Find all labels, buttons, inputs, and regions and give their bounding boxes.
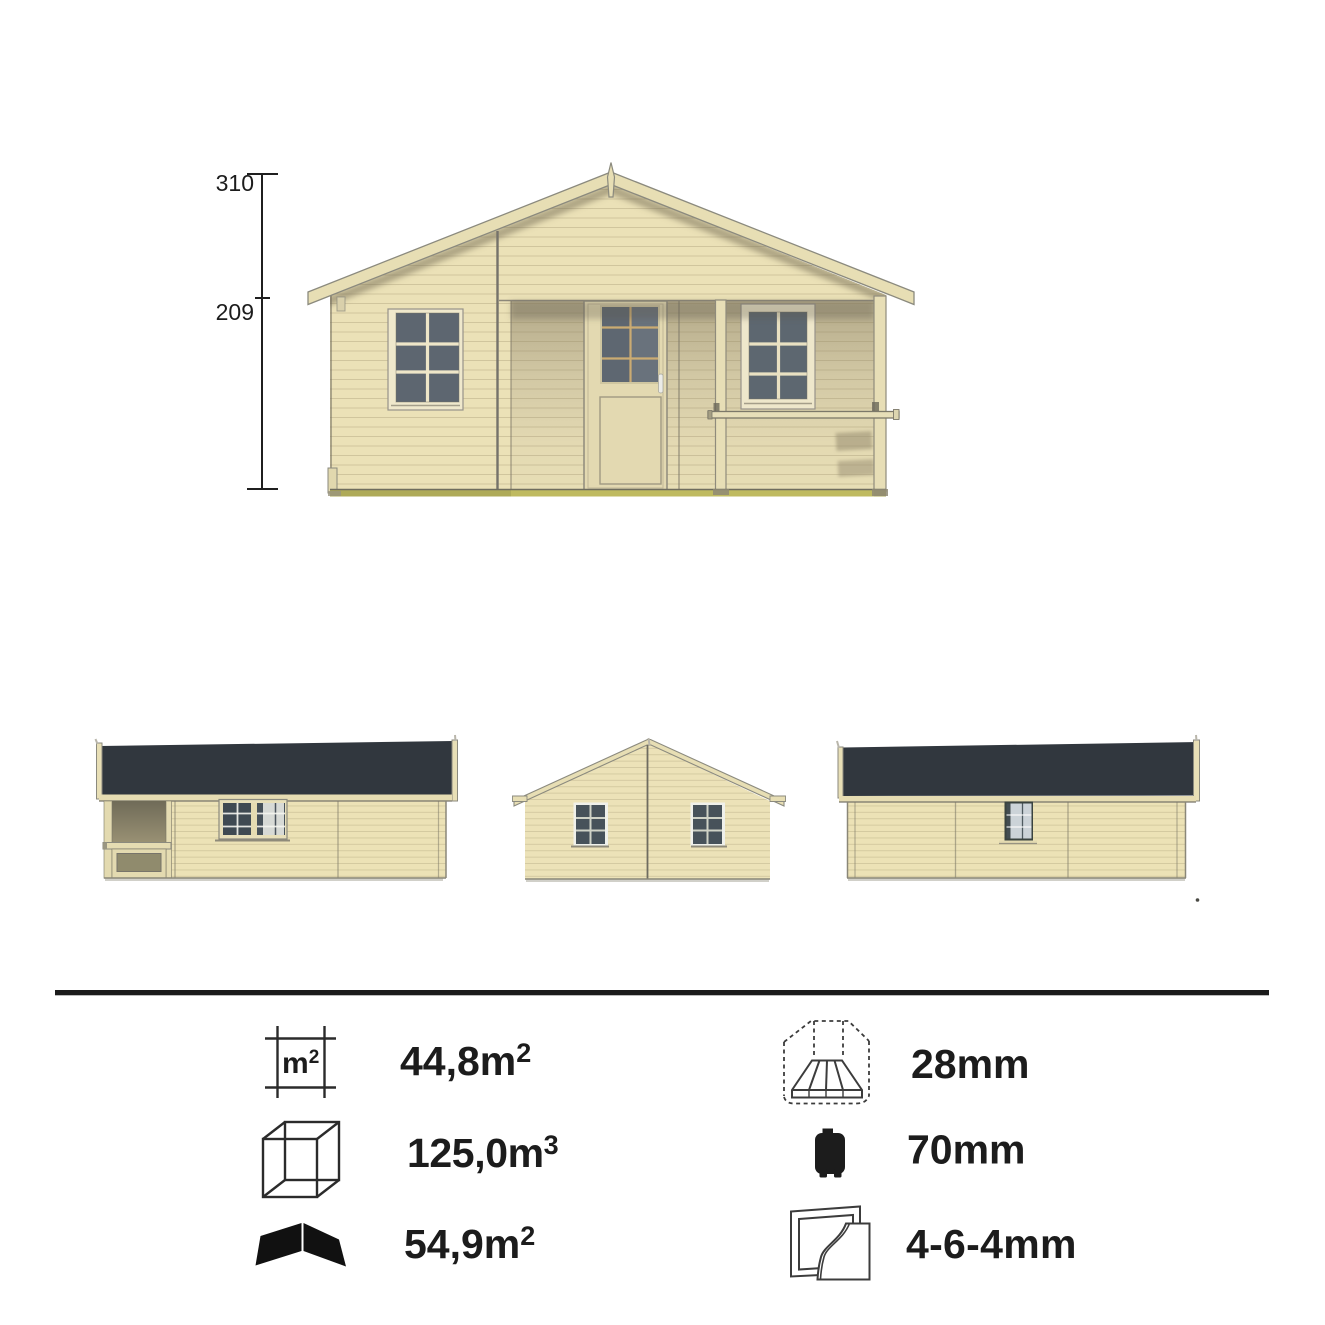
svg-text:310: 310 [216, 170, 254, 196]
svg-text:70mm: 70mm [907, 1127, 1026, 1173]
svg-text:209: 209 [216, 299, 254, 325]
svg-text:28mm: 28mm [911, 1041, 1030, 1087]
svg-text:44,8m2: 44,8m2 [400, 1038, 531, 1084]
svg-text:54,9m2: 54,9m2 [404, 1221, 535, 1267]
svg-text:4-6-4mm: 4-6-4mm [906, 1221, 1077, 1267]
svg-text:125,0m3: 125,0m3 [407, 1130, 559, 1176]
